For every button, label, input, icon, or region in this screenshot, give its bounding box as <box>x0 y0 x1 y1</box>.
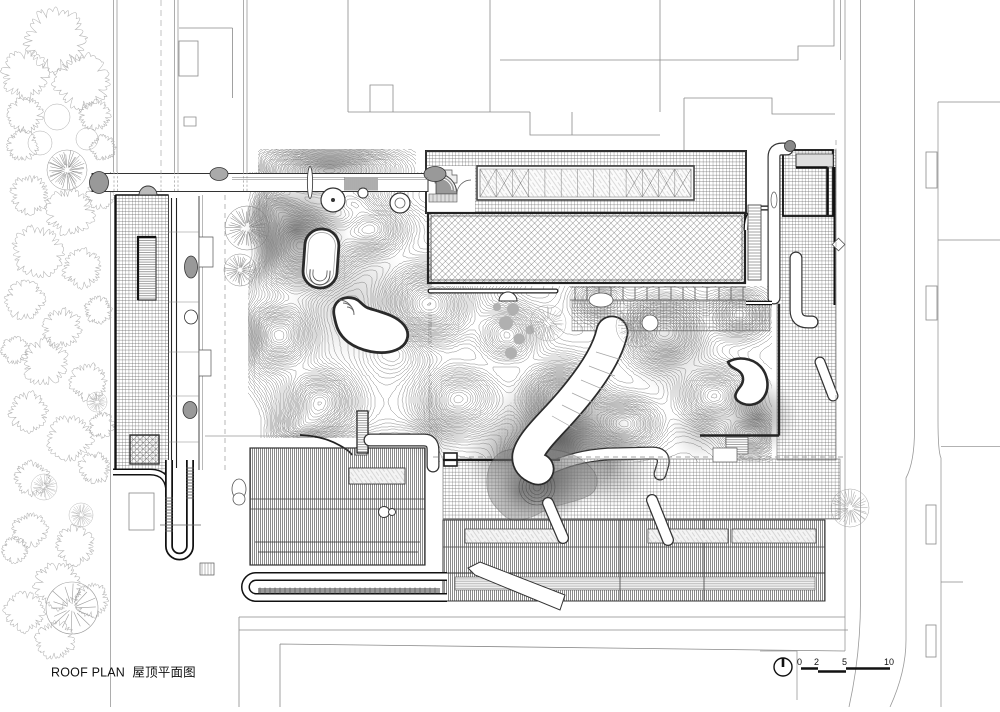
svg-text:0: 0 <box>797 657 802 667</box>
svg-text:10: 10 <box>884 657 894 667</box>
svg-text:5: 5 <box>842 657 847 667</box>
svg-text:2: 2 <box>814 657 819 667</box>
svg-text:ROOF PLAN 屋顶平面图: ROOF PLAN 屋顶平面图 <box>51 666 196 680</box>
